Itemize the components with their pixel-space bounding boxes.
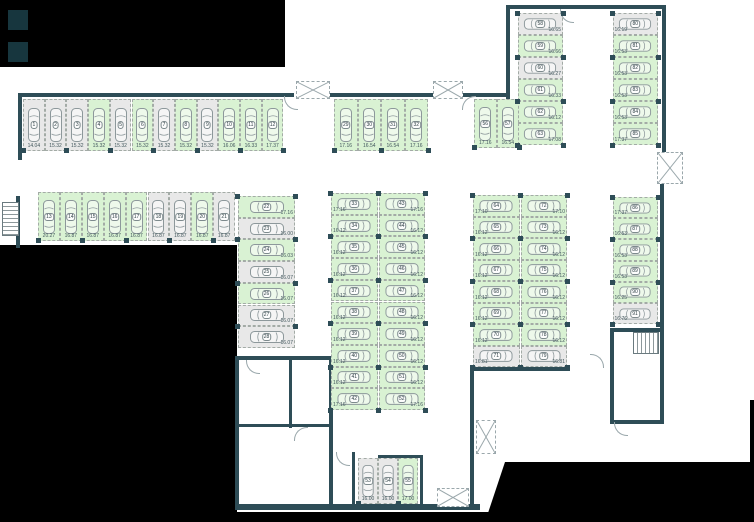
column-post — [36, 238, 41, 243]
masked-region — [480, 462, 754, 522]
space-36[interactable]: 3616.12 — [331, 258, 378, 280]
space-area-label: 15.32 — [93, 143, 106, 149]
space-62[interactable]: 6216.12 — [518, 101, 564, 123]
space-number: 47 — [397, 287, 407, 295]
space-13[interactable]: 1320.27 — [38, 192, 60, 241]
door-swing — [246, 360, 260, 374]
space-area-label: 16.12 — [475, 295, 488, 301]
space-18: 1816.87 — [148, 192, 170, 241]
space-number: 5 — [117, 121, 124, 129]
space-15[interactable]: 1516.87 — [82, 192, 104, 241]
space-number: 4 — [96, 121, 103, 129]
space-24[interactable]: 2416.03 — [238, 239, 295, 261]
space-84[interactable]: 8416.53 — [613, 101, 659, 123]
column-post — [281, 148, 286, 153]
space-area-label: 16.00 — [280, 231, 293, 237]
space-number: 28 — [262, 333, 272, 341]
space-area-label: 15.32 — [114, 143, 127, 149]
space-71: 7116.81 — [473, 346, 520, 368]
wall — [660, 184, 664, 332]
space-33[interactable]: 3317.16 — [331, 193, 378, 215]
column-post — [328, 278, 333, 283]
column-post — [565, 193, 570, 198]
space-35[interactable]: 3516.12 — [331, 236, 378, 258]
space-area-label: 16.12 — [475, 230, 488, 236]
space-42[interactable]: 4217.16 — [331, 388, 378, 410]
space-area-label: 17.08 — [548, 137, 561, 143]
space-number: 73 — [539, 223, 549, 231]
space-number: 89 — [630, 267, 640, 275]
column-post — [376, 365, 381, 370]
space-41[interactable]: 4116.12 — [331, 367, 378, 389]
space-89[interactable]: 8916.53 — [613, 261, 658, 282]
wall — [506, 5, 510, 102]
space-number: 32 — [411, 121, 421, 129]
space-number: 20 — [197, 213, 207, 221]
column-post — [293, 237, 298, 242]
space-number: 66 — [491, 245, 501, 253]
space-number: 61 — [535, 86, 545, 94]
space-area-label: 16.12 — [475, 316, 488, 322]
space-area-label: 17.16 — [333, 402, 346, 408]
wall — [235, 356, 239, 508]
space-70[interactable]: 7016.12 — [473, 324, 520, 346]
vent-shaft — [437, 488, 469, 507]
space-area-label: 16.87 — [196, 233, 209, 239]
column-post — [293, 324, 298, 329]
space-number: 78 — [539, 331, 549, 339]
space-number: 75 — [539, 266, 549, 274]
column-post — [470, 365, 475, 370]
space-number: 16 — [110, 213, 120, 221]
column-post — [518, 193, 523, 198]
column-post — [518, 365, 523, 370]
space-number: 19 — [176, 213, 186, 221]
column-post — [423, 321, 428, 326]
space-17[interactable]: 1716.87 — [126, 192, 148, 241]
space-19: 1916.87 — [169, 192, 191, 241]
space-74[interactable]: 7416.12 — [521, 238, 568, 260]
stairs-icon — [633, 332, 659, 354]
space-number: 3 — [74, 121, 81, 129]
masked-region — [750, 400, 754, 522]
space-number: 79 — [539, 352, 549, 360]
space-76[interactable]: 7616.12 — [521, 281, 568, 303]
dark-marker-square — [8, 42, 28, 62]
space-20[interactable]: 2016.87 — [191, 192, 213, 241]
space-area-label: 16.12 — [552, 273, 565, 279]
space-86[interactable]: 8617.37 — [613, 197, 658, 218]
column-post — [235, 237, 240, 242]
space-5: 515.32 — [110, 99, 132, 151]
column-post — [656, 195, 661, 200]
space-32[interactable]: 3217.16 — [405, 99, 429, 151]
space-number: 23 — [262, 225, 272, 233]
column-post — [328, 234, 333, 239]
space-55[interactable]: 5517.00 — [398, 458, 418, 504]
column-post — [610, 237, 615, 242]
space-number: 21 — [219, 213, 229, 221]
space-area-label: 17.16 — [410, 402, 423, 408]
space-number: 2 — [52, 121, 59, 129]
vent-shaft — [433, 81, 463, 99]
column-post — [328, 191, 333, 196]
space-69[interactable]: 6916.12 — [473, 303, 520, 325]
space-75[interactable]: 7516.12 — [521, 260, 568, 282]
space-7: 715.32 — [153, 99, 175, 151]
space-number: 37 — [349, 287, 359, 295]
space-number: 50 — [397, 352, 407, 360]
space-number: 45 — [397, 243, 407, 251]
space-area-label: 16.87 — [65, 233, 78, 239]
space-area-label: 15.32 — [179, 143, 192, 149]
space-number: 39 — [349, 330, 359, 338]
space-number: 59 — [535, 42, 545, 50]
space-area-label: 17.00 — [402, 496, 415, 502]
space-number: 6 — [139, 121, 146, 129]
space-51[interactable]: 5116.12 — [379, 367, 426, 389]
space-number: 29 — [341, 121, 351, 129]
space-77[interactable]: 7716.12 — [521, 303, 568, 325]
space-52[interactable]: 5217.16 — [379, 388, 426, 410]
space-57[interactable]: 5716.54 — [497, 99, 520, 148]
column-post — [610, 322, 615, 327]
space-63[interactable]: 6317.08 — [518, 123, 564, 145]
wall — [289, 360, 292, 428]
column-post — [211, 238, 216, 243]
column-post — [610, 99, 615, 104]
space-area-label: 16.53 — [615, 274, 628, 280]
space-66[interactable]: 6616.12 — [473, 238, 520, 260]
masked-region — [0, 0, 285, 67]
column-post — [518, 322, 523, 327]
column-post — [108, 148, 113, 153]
column-post — [656, 99, 661, 104]
space-area-label: 16.12 — [333, 293, 346, 299]
space-area-label: 16.12 — [333, 250, 346, 256]
space-45[interactable]: 4516.12 — [379, 236, 426, 258]
space-44[interactable]: 4416.12 — [379, 215, 426, 237]
space-area-label: 15.32 — [49, 143, 62, 149]
space-number: 27 — [262, 311, 272, 319]
space-25: 2516.07 — [238, 261, 295, 283]
column-post — [328, 321, 333, 326]
column-post — [235, 324, 240, 329]
space-area-label: 16.12 — [475, 273, 488, 279]
space-area-label: 16.53 — [615, 71, 628, 77]
space-50[interactable]: 5016.12 — [379, 345, 426, 367]
column-post — [235, 281, 240, 286]
space-number: 56 — [480, 120, 490, 128]
space-number: 84 — [630, 108, 640, 116]
space-area-label: 16.06 — [223, 143, 236, 149]
space-number: 60 — [535, 64, 545, 72]
column-post — [472, 145, 477, 150]
space-60: 6016.27 — [518, 57, 564, 79]
space-area-label: 16.12 — [410, 380, 423, 386]
column-post — [332, 148, 337, 153]
space-area-label: 17.16 — [410, 207, 423, 213]
space-area-label: 16.87 — [174, 233, 187, 239]
space-number: 86 — [630, 204, 640, 212]
space-26[interactable]: 2616.07 — [238, 283, 295, 305]
space-27: 2716.07 — [238, 305, 295, 327]
space-area-label: 16.25 — [615, 295, 628, 301]
column-post — [610, 195, 615, 200]
wall — [237, 424, 333, 427]
column-post — [518, 279, 523, 284]
space-number: 62 — [535, 108, 545, 116]
column-post — [518, 236, 523, 241]
space-area-label: 16.87 — [218, 233, 231, 239]
wall — [329, 93, 436, 97]
space-number: 42 — [349, 395, 359, 403]
space-number: 15 — [88, 213, 98, 221]
space-area-label: 16.87 — [130, 233, 143, 239]
space-area-label: 16.87 — [108, 233, 121, 239]
space-47[interactable]: 4716.12 — [379, 280, 426, 302]
space-area-label: 16.00 — [362, 496, 375, 502]
space-number: 8 — [182, 121, 189, 129]
wall — [352, 452, 355, 508]
space-area-label: 16.07 — [280, 296, 293, 302]
space-area-label: 16.12 — [410, 315, 423, 321]
space-area-label: 16.33 — [245, 143, 258, 149]
space-number: 24 — [262, 246, 272, 254]
space-39[interactable]: 3916.12 — [331, 323, 378, 345]
column-post — [470, 322, 475, 327]
space-number: 26 — [262, 290, 272, 298]
space-area-label: 16.12 — [552, 252, 565, 258]
space-area-label: 16.12 — [548, 115, 561, 121]
space-number: 83 — [630, 86, 640, 94]
space-31[interactable]: 3116.54 — [381, 99, 405, 151]
column-post — [656, 322, 661, 327]
column-post — [167, 238, 172, 243]
space-number: 1 — [30, 121, 37, 129]
column-post — [235, 194, 240, 199]
space-83[interactable]: 8316.53 — [613, 79, 659, 101]
space-area-label: 16.00 — [382, 496, 395, 502]
space-number: 76 — [539, 288, 549, 296]
space-area-label: 16.54 — [386, 143, 399, 149]
space-area-label: 17.37 — [615, 137, 628, 143]
space-23: 2316.00 — [238, 218, 295, 240]
column-post — [423, 278, 428, 283]
space-area-label: 16.12 — [410, 250, 423, 256]
column-post — [195, 148, 200, 153]
space-48[interactable]: 4816.12 — [379, 302, 426, 324]
space-61[interactable]: 6116.33 — [518, 79, 564, 101]
space-85[interactable]: 8517.37 — [613, 123, 659, 145]
space-49[interactable]: 4916.12 — [379, 323, 426, 345]
space-80: 8016.19 — [613, 13, 659, 35]
space-number: 81 — [630, 42, 640, 50]
door-swing — [462, 96, 476, 110]
space-number: 70 — [491, 331, 501, 339]
space-88[interactable]: 8816.53 — [613, 239, 658, 260]
column-post — [565, 236, 570, 241]
space-16[interactable]: 1616.87 — [104, 192, 126, 241]
space-number: 80 — [630, 20, 640, 28]
space-number: 51 — [397, 373, 407, 381]
column-post — [80, 238, 85, 243]
space-number: 68 — [491, 288, 501, 296]
space-number: 57 — [503, 120, 513, 128]
space-8[interactable]: 815.32 — [175, 99, 197, 151]
column-post — [379, 148, 384, 153]
space-12[interactable]: 1217.37 — [262, 99, 284, 151]
space-area-label: 20.27 — [43, 233, 56, 239]
space-90[interactable]: 9016.25 — [613, 282, 658, 303]
space-number: 49 — [397, 330, 407, 338]
column-post — [21, 148, 26, 153]
column-post — [376, 234, 381, 239]
space-area-label: 16.54 — [501, 140, 514, 146]
column-post — [610, 11, 615, 16]
space-number: 7 — [161, 121, 168, 129]
space-6[interactable]: 615.32 — [132, 99, 154, 151]
space-34[interactable]: 3416.12 — [331, 215, 378, 237]
space-number: 74 — [539, 245, 549, 253]
space-area-label: 15.32 — [136, 143, 149, 149]
space-number: 52 — [397, 395, 407, 403]
space-46[interactable]: 4616.12 — [379, 258, 426, 280]
door-swing — [614, 422, 628, 436]
column-post — [423, 191, 428, 196]
column-post — [515, 99, 520, 104]
column-post — [656, 143, 661, 148]
space-area-label: 16.81 — [475, 359, 488, 365]
column-post — [515, 143, 520, 148]
space-number: 11 — [246, 121, 255, 129]
space-65[interactable]: 6516.12 — [473, 217, 520, 239]
space-64[interactable]: 6417.10 — [473, 195, 520, 217]
space-number: 82 — [630, 64, 640, 72]
space-59[interactable]: 5916.66 — [518, 35, 564, 57]
space-number: 90 — [630, 288, 640, 296]
space-22[interactable]: 2217.16 — [238, 196, 295, 218]
space-68[interactable]: 6816.12 — [473, 281, 520, 303]
space-number: 40 — [349, 352, 359, 360]
space-area-label: 16.03 — [280, 253, 293, 259]
space-81[interactable]: 8116.53 — [613, 35, 659, 57]
space-43[interactable]: 4317.16 — [379, 193, 426, 215]
vent-shaft — [296, 81, 330, 99]
column-post — [423, 365, 428, 370]
door-swing — [590, 354, 604, 368]
space-area-label: 17.16 — [339, 143, 352, 149]
column-post — [561, 143, 566, 148]
space-29[interactable]: 2917.16 — [334, 99, 358, 151]
space-area-label: 16.12 — [410, 272, 423, 278]
column-post — [423, 408, 428, 413]
column-post — [561, 55, 566, 60]
column-post — [565, 322, 570, 327]
column-post — [561, 99, 566, 104]
space-area-label: 17.16 — [479, 140, 492, 146]
masked-region — [0, 245, 237, 522]
column-post — [293, 194, 298, 199]
space-number: 69 — [491, 309, 501, 317]
space-72[interactable]: 7217.10 — [521, 195, 568, 217]
wall — [420, 455, 423, 508]
column-post — [356, 501, 361, 506]
column-post — [470, 193, 475, 198]
door-swing — [284, 96, 298, 110]
column-post — [656, 280, 661, 285]
space-area-label: 16.12 — [410, 359, 423, 365]
space-14[interactable]: 1416.87 — [60, 192, 82, 241]
space-area-label: 16.12 — [552, 230, 565, 236]
space-area-label: 16.12 — [475, 338, 488, 344]
space-number: 38 — [349, 308, 359, 316]
space-number: 35 — [349, 243, 359, 251]
space-area-label: 14.04 — [28, 143, 41, 149]
space-number: 9 — [204, 121, 211, 129]
space-number: 71 — [491, 352, 501, 360]
space-87[interactable]: 8716.53 — [613, 218, 658, 239]
space-area-label: 16.87 — [152, 233, 165, 239]
space-79: 7916.81 — [521, 346, 568, 368]
column-post — [656, 237, 661, 242]
column-post — [610, 143, 615, 148]
space-number: 87 — [630, 225, 640, 233]
space-number: 14 — [66, 213, 76, 221]
wall — [610, 328, 614, 424]
space-10[interactable]: 1016.06 — [218, 99, 240, 151]
space-number: 67 — [491, 266, 501, 274]
space-area-label: 17.37 — [615, 210, 628, 216]
space-area-label: 17.10 — [552, 209, 565, 215]
space-area-label: 17.16 — [333, 207, 346, 213]
space-area-label: 16.76 — [615, 316, 628, 322]
space-82[interactable]: 8216.53 — [613, 57, 659, 79]
column-post — [565, 279, 570, 284]
space-67[interactable]: 6716.12 — [473, 260, 520, 282]
space-area-label: 16.12 — [333, 228, 346, 234]
space-area-label: 16.12 — [552, 295, 565, 301]
space-56[interactable]: 5617.16 — [474, 99, 497, 148]
space-30[interactable]: 3016.54 — [358, 99, 382, 151]
space-number: 65 — [491, 223, 501, 231]
space-area-label: 16.53 — [615, 115, 628, 121]
space-58: 5816.65 — [518, 13, 564, 35]
space-11[interactable]: 1116.33 — [240, 99, 262, 151]
space-37[interactable]: 3716.12 — [331, 280, 378, 302]
space-area-label: 16.53 — [615, 231, 628, 237]
vent-shaft — [657, 152, 683, 184]
space-number: 46 — [397, 265, 407, 273]
space-number: 36 — [349, 265, 359, 273]
space-40[interactable]: 4016.12 — [331, 345, 378, 367]
space-73[interactable]: 7316.12 — [521, 217, 568, 239]
column-post — [470, 279, 475, 284]
space-area-label: 16.33 — [548, 93, 561, 99]
space-4[interactable]: 415.32 — [88, 99, 110, 151]
door-swing — [294, 427, 308, 441]
space-area-label: 16.27 — [548, 71, 561, 77]
space-number: 55 — [403, 477, 413, 485]
space-area-label: 17.16 — [280, 210, 293, 216]
space-78[interactable]: 7816.12 — [521, 324, 568, 346]
space-21: 2116.87 — [213, 192, 235, 241]
space-area-label: 16.54 — [363, 143, 376, 149]
space-38[interactable]: 3816.12 — [331, 302, 378, 324]
column-post — [515, 55, 520, 60]
wall — [470, 368, 474, 508]
space-area-label: 16.12 — [333, 380, 346, 386]
